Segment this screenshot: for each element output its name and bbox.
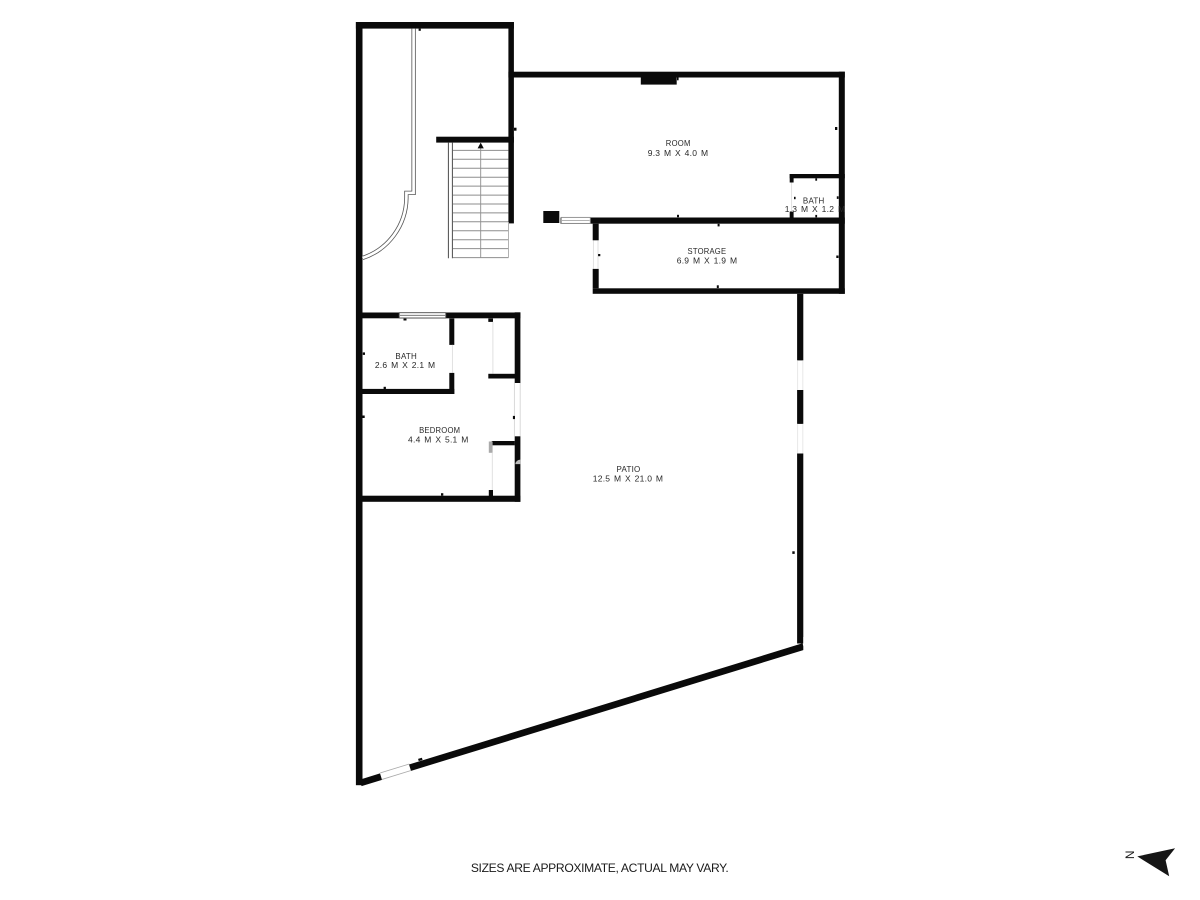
svg-text:ROOM: ROOM <box>666 138 691 148</box>
svg-text:1.3 M X 1.2 M: 1.3 M X 1.2 M <box>785 204 846 214</box>
svg-text:BEDROOM: BEDROOM <box>419 425 460 435</box>
svg-text:12.5 M X 21.0 M: 12.5 M X 21.0 M <box>593 474 664 484</box>
svg-text:SIZES ARE APPROXIMATE, ACTUAL: SIZES ARE APPROXIMATE, ACTUAL MAY VARY. <box>471 861 729 875</box>
svg-text:9.3 M X 4.0 M: 9.3 M X 4.0 M <box>648 148 709 158</box>
svg-text:N: N <box>1123 850 1137 859</box>
svg-text:4.4 M X 5.1 M: 4.4 M X 5.1 M <box>408 435 469 445</box>
svg-text:PATIO: PATIO <box>617 464 641 474</box>
svg-text:STORAGE: STORAGE <box>688 246 727 256</box>
svg-text:2.6 M X 2.1 M: 2.6 M X 2.1 M <box>375 360 436 370</box>
svg-text:6.9 M X 1.9 M: 6.9 M X 1.9 M <box>677 256 738 266</box>
